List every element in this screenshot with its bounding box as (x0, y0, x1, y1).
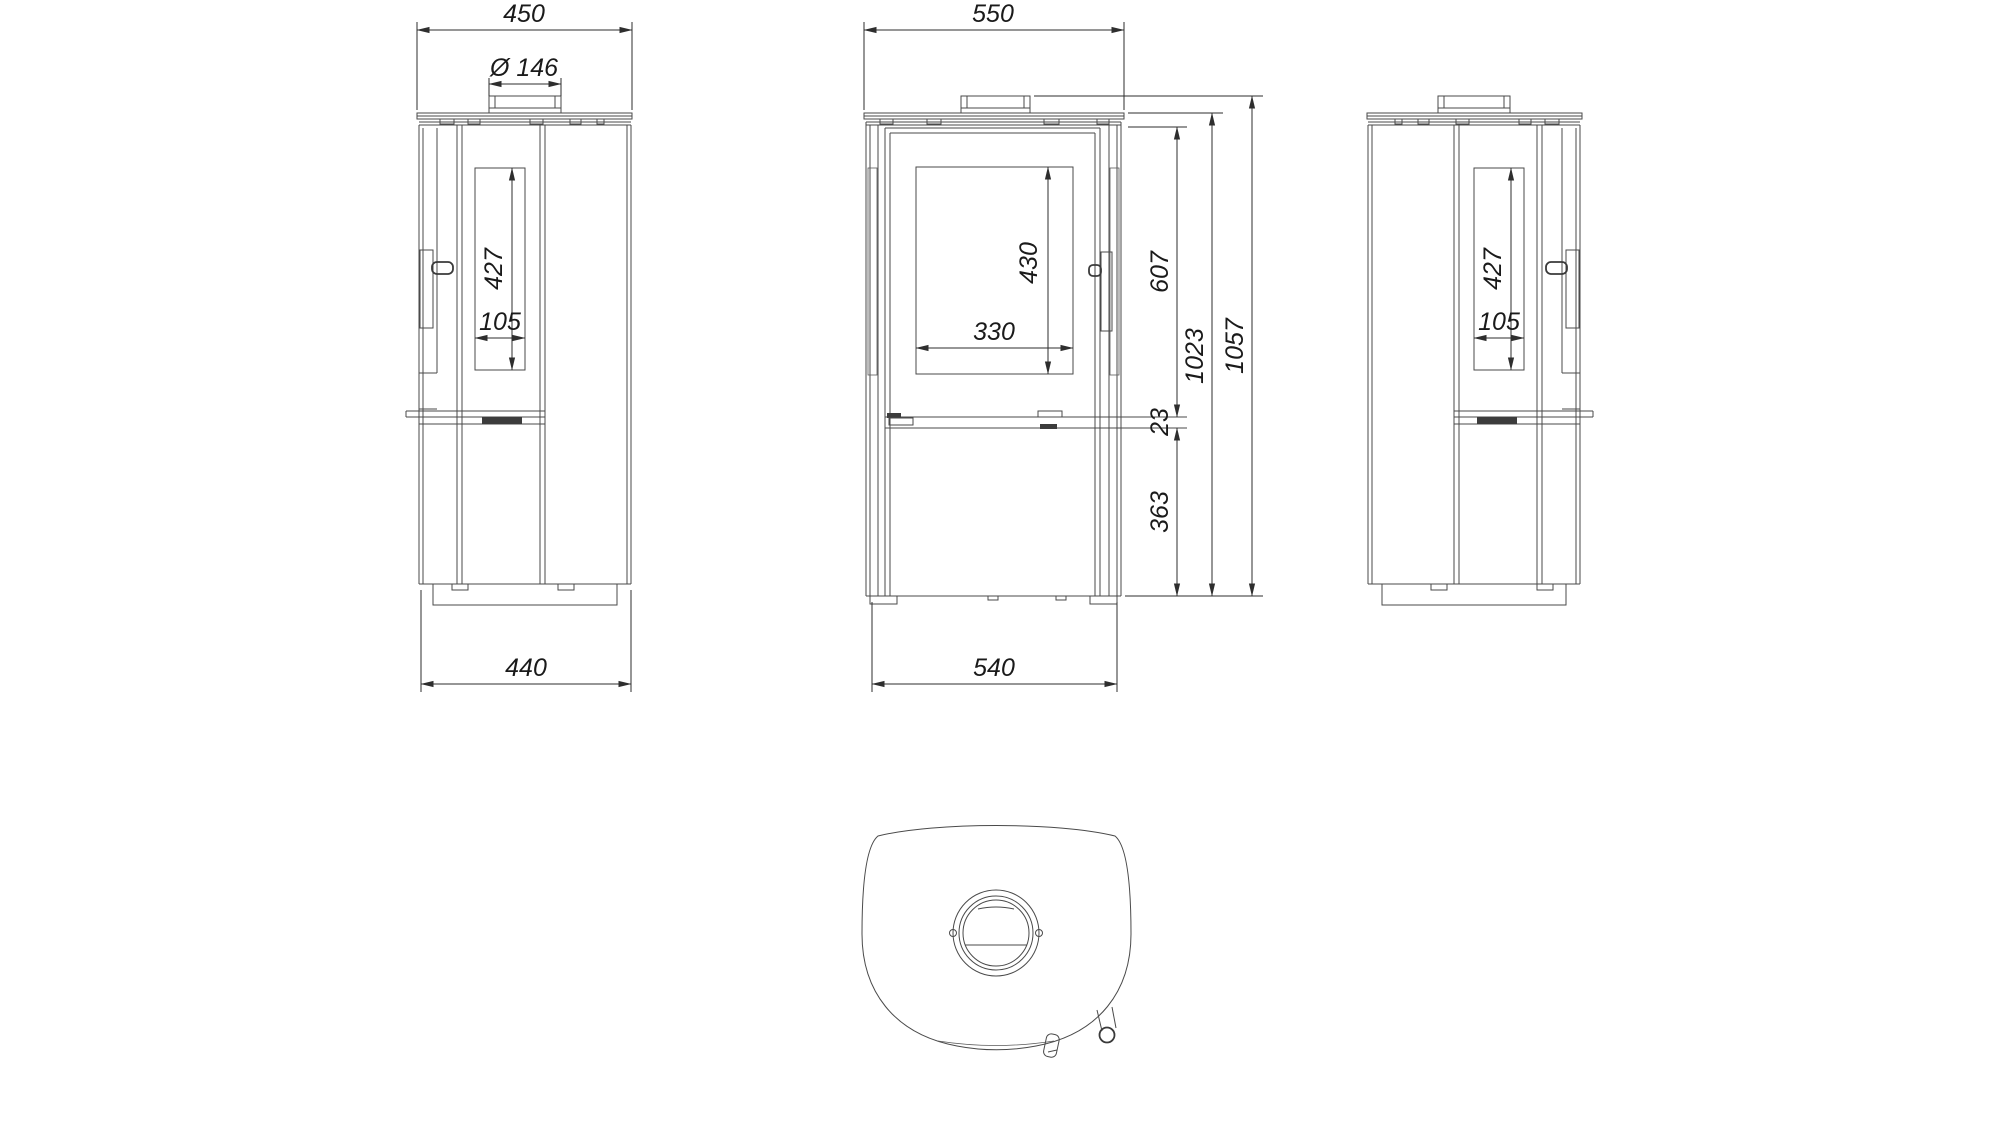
body-front (866, 122, 1121, 596)
dim-label-330: 330 (973, 318, 1015, 346)
dim-label-427-right: 427 (1479, 247, 1507, 290)
dim-glass-height-right: 427 (1479, 168, 1511, 370)
dim-label-607: 607 (1146, 250, 1174, 293)
front-panel-edge-top-view (938, 1041, 1054, 1046)
front-view: 550 430 330 607 23 363 1023 (864, 0, 1263, 692)
top-view (862, 826, 1131, 1059)
dim-label-flue: Ø 146 (489, 54, 558, 82)
handle-pin-end (1100, 1028, 1115, 1043)
ash-lip-front (885, 411, 1187, 429)
dim-label-430: 430 (1015, 242, 1043, 284)
side-view-right: 427 105 (1367, 96, 1593, 605)
dim-label-550: 550 (972, 0, 1014, 28)
flue-damper-top-edge (978, 907, 1014, 909)
side-glass-strip-left-of-front (868, 168, 877, 375)
side-view-left: 450 Ø 146 427 105 440 (406, 0, 632, 692)
dim-glass-width-right: 105 (1474, 308, 1524, 338)
dim-top-width-front: 550 (864, 0, 1124, 110)
base-side-left (419, 584, 631, 605)
dim-label-363: 363 (1146, 491, 1174, 533)
dim-label-1023: 1023 (1181, 328, 1209, 384)
dim-flue-diameter: Ø 146 (489, 54, 561, 96)
dim-label-105-left: 105 (479, 308, 521, 336)
ash-lip-side-right (1454, 411, 1593, 424)
dim-label-23: 23 (1146, 408, 1174, 437)
dim-base-width-front: 540 (872, 602, 1117, 692)
flue-collar-side-left (489, 96, 561, 113)
dim-label-105-right: 105 (1478, 308, 1520, 336)
dim-glass-width-front: 330 (916, 318, 1073, 348)
dim-label-540: 540 (973, 654, 1015, 682)
technical-drawing-sheet: 450 Ø 146 427 105 440 (0, 0, 2000, 1125)
flue-outlet-top-view (950, 890, 1043, 976)
flue-collar-front (961, 96, 1030, 113)
dim-glass-width-left: 105 (475, 308, 525, 338)
side-glass-strip-right-of-front (1110, 168, 1119, 375)
top-view-outline (862, 826, 1131, 1050)
dim-label-1057: 1057 (1221, 317, 1249, 374)
dim-stack-right: 607 23 363 1023 1057 (1034, 96, 1263, 596)
handle-pins-top-view (1043, 1007, 1116, 1058)
dim-glass-height-left: 427 (480, 168, 512, 370)
flue-collar-side-right (1438, 96, 1510, 113)
base-side-right (1368, 584, 1580, 605)
dim-label-427-left: 427 (480, 247, 508, 290)
stove-dimension-drawing: 450 Ø 146 427 105 440 (0, 0, 2000, 1125)
base-front (866, 596, 1121, 604)
dim-label-450: 450 (503, 0, 545, 28)
dim-label-440: 440 (505, 654, 547, 682)
ash-lip-side-left (406, 411, 545, 424)
dim-glass-height-front: 430 (1015, 167, 1048, 374)
